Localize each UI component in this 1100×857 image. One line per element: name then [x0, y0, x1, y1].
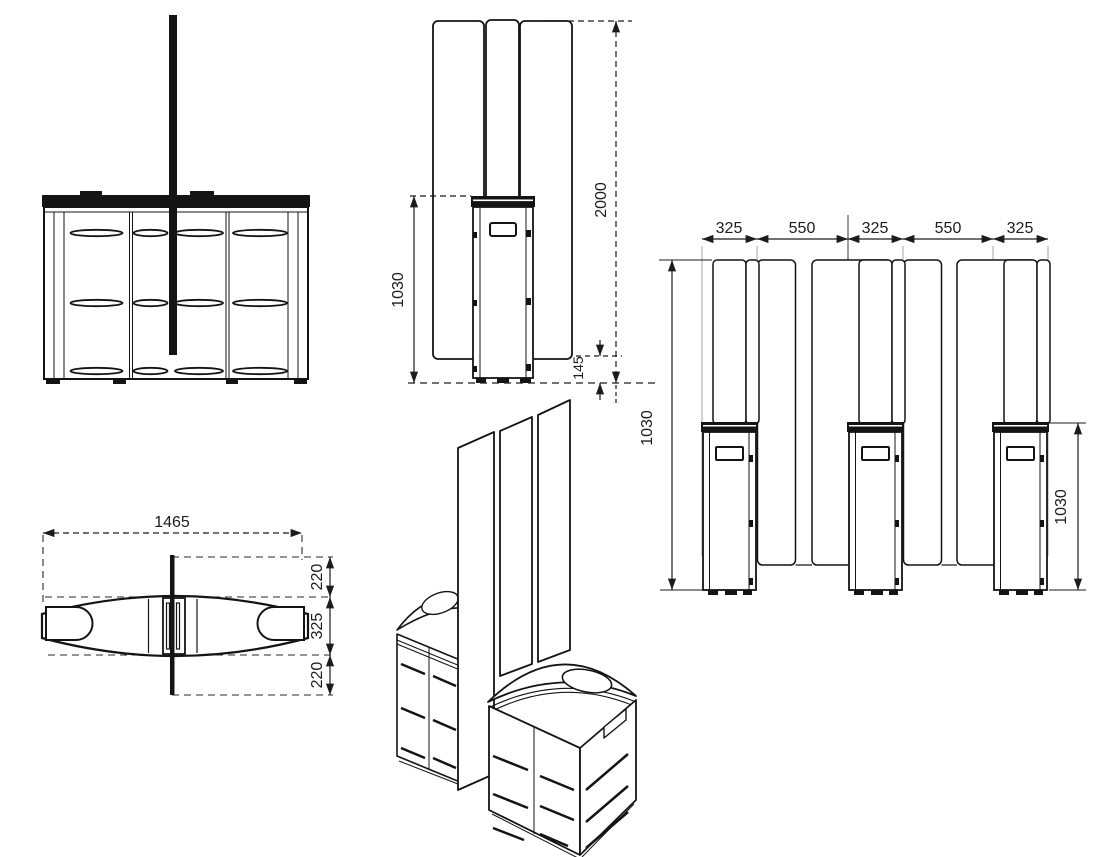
dim-label-pedestal-width-2: 325 — [862, 220, 889, 237]
pedestal-top-cap — [471, 196, 535, 207]
iso-back-pedestal — [397, 587, 465, 784]
card-reader-window — [862, 447, 889, 460]
cap-highlight — [849, 425, 902, 427]
iso-blade-2 — [500, 417, 532, 676]
pedestal-top-cap — [701, 422, 758, 432]
dim-label-glass-gap: 145 — [570, 356, 586, 380]
dim-label-lane-width-1: 550 — [789, 220, 816, 237]
dim-label-depth: 325 — [309, 613, 326, 640]
dim-label-top-offset: 220 — [309, 564, 326, 591]
pedestal-unit-1 — [701, 260, 759, 595]
plan-view: 1465 220 325 220 — [42, 514, 333, 695]
swing-glass-blade-edge — [170, 555, 175, 695]
iso-front-pedestal — [488, 664, 636, 857]
pedestal-top-cap — [847, 422, 904, 432]
isometric-view — [397, 400, 636, 857]
pedestal-feet — [854, 590, 898, 595]
dim-label-left-height: 1030 — [639, 410, 656, 446]
pedestal-top-cap — [992, 422, 1049, 432]
card-reader-window — [716, 447, 743, 460]
lanes-front-view: 325 550 325 550 325 — [639, 215, 1086, 595]
side-elevation-view: 1030 2000 145 — [390, 20, 658, 404]
glass-tower-panels — [1004, 260, 1050, 424]
speedgate-drawing: 1030 2000 145 325 550 325 550 325 — [0, 0, 1100, 857]
dim-label-pedestal-width-1: 325 — [716, 220, 743, 237]
swing-glass-blade-edge — [169, 15, 177, 355]
technical-drawing-sheet: 1030 2000 145 325 550 325 550 325 — [0, 0, 1100, 857]
reader-recess-left — [46, 607, 93, 640]
dim-label-pedestal-height: 1030 — [390, 272, 407, 308]
front-elevation-view — [42, 15, 310, 384]
cabinet-top-ticks — [80, 191, 214, 195]
dim-label-pedestal-width-3: 325 — [1007, 220, 1034, 237]
pedestal-feet — [476, 378, 531, 383]
cap-highlight — [994, 425, 1047, 427]
cap-highlight — [703, 425, 756, 427]
card-reader-window — [1007, 447, 1034, 460]
dim-label-bottom-offset: 220 — [309, 662, 326, 689]
dim-label-lane-width-2: 550 — [935, 220, 962, 237]
dim-label-right-height: 1030 — [1053, 489, 1070, 525]
glass-tower-panels — [859, 260, 905, 424]
dim-label-overall-width: 1465 — [154, 514, 190, 531]
cap-highlight — [473, 200, 533, 202]
card-reader-window — [490, 223, 516, 236]
reader-recess-right — [258, 607, 304, 640]
iso-blade-3 — [538, 400, 570, 662]
pedestal-feet — [708, 590, 752, 595]
dim-label-total-height: 2000 — [593, 182, 610, 218]
glass-tower-panels — [713, 260, 759, 424]
pedestal-feet — [999, 590, 1043, 595]
